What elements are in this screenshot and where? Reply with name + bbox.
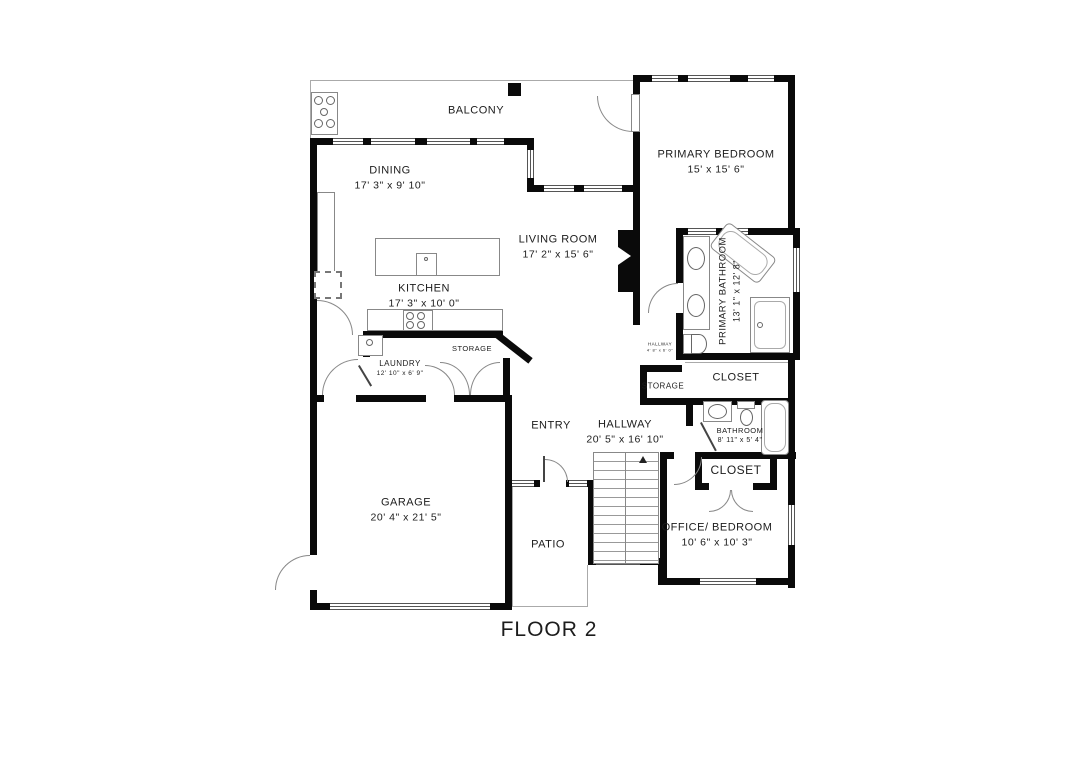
window <box>333 138 363 145</box>
wall <box>788 398 795 505</box>
grill-burner-icon <box>314 96 323 105</box>
burner-icon <box>406 312 414 320</box>
room-name: GARAGE <box>371 495 442 510</box>
wall <box>793 292 800 358</box>
window <box>788 505 795 545</box>
door-leaf <box>358 365 372 387</box>
wall <box>676 228 683 283</box>
room-label-closet-office: CLOSET <box>710 462 761 478</box>
room-name: BALCONY <box>448 104 504 119</box>
room-dims: 17' 3" x 9' 10" <box>355 178 426 192</box>
room-name: PRIMARY BATHROOM <box>718 237 731 345</box>
window <box>427 138 470 145</box>
room-name: STORAGE <box>642 382 684 393</box>
toilet-tank-icon <box>737 401 755 409</box>
grill-burner-icon <box>320 108 328 116</box>
window <box>527 150 534 178</box>
room-name: CLOSET <box>710 462 761 478</box>
room-dims: 8' 11" x 5' 4" <box>717 436 764 445</box>
room-name: OFFICE/ BEDROOM <box>662 520 773 535</box>
room-name: CLOSET <box>712 371 759 386</box>
wall <box>695 483 709 490</box>
sink-icon <box>687 294 705 317</box>
wall <box>686 398 693 426</box>
room-label-storage-hall: STORAGE <box>642 382 684 393</box>
room-dims: 13' 1" x 12' 8" <box>730 237 742 345</box>
patio-edge <box>512 606 588 607</box>
counter <box>367 309 503 331</box>
faucet-icon <box>366 339 373 346</box>
floor-title: FLOOR 2 <box>501 616 598 644</box>
wall <box>633 132 640 232</box>
patio-edge <box>587 565 588 607</box>
counter <box>317 192 335 272</box>
window <box>371 138 415 145</box>
room-dims: 17' 3" x 10' 0" <box>389 296 460 310</box>
room-label-primary-bathroom: PRIMARY BATHROOM 13' 1" x 12' 8" <box>718 237 743 345</box>
door-arc <box>470 362 500 395</box>
door-arc <box>731 490 753 512</box>
room-dims: 17' 2" x 15' 6" <box>519 247 598 261</box>
bathtub-inner <box>764 403 786 452</box>
closet-rod <box>685 362 788 363</box>
wall <box>788 75 795 235</box>
window <box>512 480 534 487</box>
stairs <box>593 452 659 564</box>
room-name: PRIMARY BEDROOM <box>657 147 774 162</box>
door-arc <box>275 555 310 590</box>
door-leaf <box>700 422 717 451</box>
wall <box>494 331 533 364</box>
window <box>688 75 730 82</box>
burner-icon <box>406 321 414 329</box>
window <box>544 185 574 192</box>
room-label-living-room: LIVING ROOM 17' 2" x 15' 6" <box>519 232 598 261</box>
door-leaf <box>631 94 640 132</box>
room-dims: 12' 10" x 6' 9" <box>377 370 424 379</box>
garage-door <box>330 603 490 610</box>
room-label-office-bedroom: OFFICE/ BEDROOM 10' 6" x 10' 3" <box>662 520 773 549</box>
room-label-hallway-upper: HALLWAY 4' 8" x 6' 0" <box>647 341 673 352</box>
door-arc <box>648 283 678 313</box>
door-arc <box>440 362 470 395</box>
floor-plan: BALCONY DINING 17' 3" x 9' 10" PRIMARY B… <box>0 0 1086 768</box>
wall <box>793 228 800 248</box>
bathtub-icon <box>761 400 789 455</box>
room-dims: 15' x 15' 6" <box>657 162 774 176</box>
wall <box>640 365 682 372</box>
wall <box>633 292 640 325</box>
room-dims: 10' 6" x 10' 3" <box>662 535 773 549</box>
door-arc <box>322 359 358 395</box>
room-name: DINING <box>355 163 426 178</box>
door-leaf <box>543 456 545 482</box>
window <box>569 480 587 487</box>
wall <box>503 358 510 402</box>
balcony-post <box>508 83 521 96</box>
patio-edge <box>512 487 513 607</box>
room-name: HALLWAY <box>586 417 663 432</box>
wall <box>505 398 512 610</box>
window <box>477 138 504 145</box>
room-label-closet-primary: CLOSET <box>712 371 759 386</box>
room-label-balcony: BALCONY <box>448 104 504 119</box>
window <box>688 228 716 235</box>
door-arc <box>709 490 731 512</box>
room-name: LIVING ROOM <box>519 232 598 247</box>
sink-icon <box>708 404 727 419</box>
room-name: ENTRY <box>531 419 571 434</box>
wall <box>356 395 426 402</box>
stairs-up-arrow-icon <box>639 456 647 463</box>
wall <box>367 331 503 338</box>
room-name: BATHROOM <box>717 426 764 436</box>
room-name: STORAGE <box>452 344 492 354</box>
toilet-bowl-icon <box>740 409 753 426</box>
window <box>584 185 622 192</box>
door-arc <box>317 300 353 335</box>
room-label-kitchen: KITCHEN 17' 3" x 10' 0" <box>389 281 460 310</box>
fireplace-opening <box>618 247 631 265</box>
room-label-patio: PATIO <box>531 538 565 553</box>
room-label-laundry: LAUNDRY 12' 10" x 6' 9" <box>377 359 424 379</box>
window <box>748 75 774 82</box>
room-label-primary-bedroom: PRIMARY BEDROOM 15' x 15' 6" <box>657 147 774 176</box>
room-label-entry: ENTRY <box>531 419 571 434</box>
fridge-outline <box>314 271 342 299</box>
wall <box>633 75 640 96</box>
drain-icon <box>757 322 763 328</box>
room-label-garage: GARAGE 20' 4" x 21' 5" <box>371 495 442 524</box>
burner-icon <box>417 321 425 329</box>
door-arc <box>597 96 633 132</box>
grill-burner-icon <box>326 119 335 128</box>
room-label-bathroom: BATHROOM 8' 11" x 5' 4" <box>717 426 764 446</box>
room-dims: 4' 8" x 6' 0" <box>647 347 673 352</box>
wall <box>310 138 317 555</box>
window <box>652 75 678 82</box>
room-label-storage-kitchen: STORAGE <box>452 344 492 354</box>
wall <box>676 353 800 360</box>
room-label-hallway: HALLWAY 20' 5" x 16' 10" <box>586 417 663 446</box>
door-arc <box>545 459 568 482</box>
wall <box>658 558 665 585</box>
toilet-bowl-icon <box>691 334 707 354</box>
window <box>700 578 756 585</box>
wall <box>753 483 777 490</box>
room-dims: 20' 5" x 16' 10" <box>586 432 663 446</box>
room-name: PATIO <box>531 538 565 553</box>
stairs-divider <box>625 452 626 564</box>
grill-burner-icon <box>326 96 335 105</box>
wall <box>310 395 324 402</box>
room-dims: 20' 4" x 21' 5" <box>371 510 442 524</box>
sink-icon <box>687 247 705 270</box>
window <box>793 248 800 292</box>
room-name: KITCHEN <box>389 281 460 296</box>
balcony-edge <box>310 80 634 81</box>
kitchen-island <box>375 238 500 276</box>
room-name: LAUNDRY <box>377 359 424 370</box>
room-label-dining: DINING 17' 3" x 9' 10" <box>355 163 426 192</box>
burner-icon <box>417 312 425 320</box>
grill-burner-icon <box>314 119 323 128</box>
faucet-icon <box>424 257 428 261</box>
